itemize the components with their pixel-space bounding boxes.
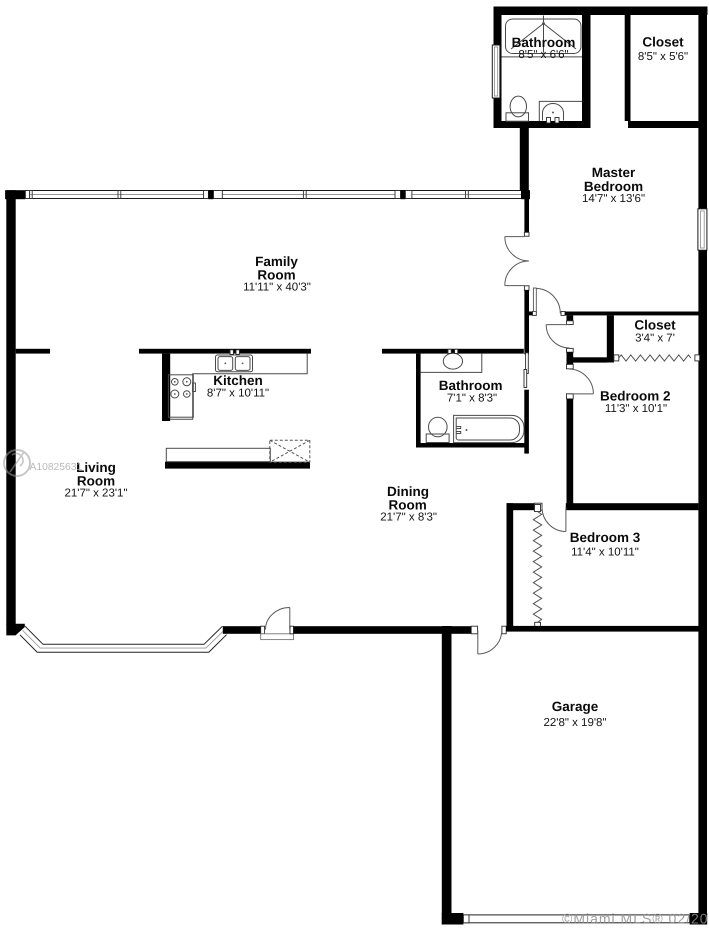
svg-text:Closet: Closet bbox=[634, 318, 676, 333]
svg-text:21'7" x 8'3": 21'7" x 8'3" bbox=[380, 512, 437, 524]
svg-text:Room: Room bbox=[77, 474, 115, 489]
svg-text:Garage: Garage bbox=[552, 699, 599, 714]
svg-text:Room: Room bbox=[257, 268, 295, 283]
svg-text:3'4" x 7': 3'4" x 7' bbox=[635, 333, 675, 345]
svg-text:22'8" x 19'8": 22'8" x 19'8" bbox=[543, 717, 606, 729]
svg-text:A10825631: A10825631 bbox=[30, 462, 83, 473]
svg-text:21'7" x 23'1": 21'7" x 23'1" bbox=[64, 488, 127, 500]
svg-text:Bedroom 2: Bedroom 2 bbox=[600, 388, 671, 403]
svg-text:Bathroom: Bathroom bbox=[512, 35, 576, 50]
svg-text:8'7" x 10'11": 8'7" x 10'11" bbox=[207, 388, 269, 400]
svg-text:Kitchen: Kitchen bbox=[213, 373, 263, 388]
svg-text:Bathroom: Bathroom bbox=[439, 378, 503, 393]
svg-text:14'7" x 13'6": 14'7" x 13'6" bbox=[582, 193, 645, 205]
svg-text:11'11" x 40'3": 11'11" x 40'3" bbox=[243, 282, 311, 294]
svg-text:8'5" x 6'6": 8'5" x 6'6" bbox=[518, 49, 568, 61]
svg-text:Room: Room bbox=[388, 498, 426, 513]
svg-text:Bedroom: Bedroom bbox=[584, 179, 643, 194]
svg-text:11'3" x 10'1": 11'3" x 10'1" bbox=[605, 403, 667, 415]
svg-text:7'1" x 8'3": 7'1" x 8'3" bbox=[447, 393, 497, 405]
svg-text:Bedroom 3: Bedroom 3 bbox=[570, 530, 641, 545]
svg-text:©Miami MLS® 02/2020: ©Miami MLS® 02/2020 bbox=[562, 911, 709, 927]
svg-text:Master: Master bbox=[592, 165, 636, 180]
svg-text:8'5" x 5'6": 8'5" x 5'6" bbox=[638, 51, 688, 63]
svg-text:11'4" x 10'11": 11'4" x 10'11" bbox=[571, 547, 639, 559]
svg-text:Closet: Closet bbox=[642, 35, 684, 50]
